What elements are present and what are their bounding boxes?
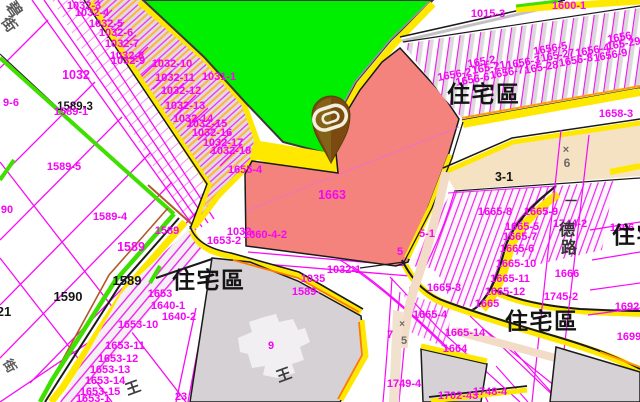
svg-text:5-1: 5-1 (419, 228, 435, 240)
svg-text:1015-3: 1015-3 (471, 8, 505, 20)
svg-text:9-6: 9-6 (3, 97, 19, 109)
svg-text:1665-9: 1665-9 (524, 206, 558, 218)
svg-text:1665-6: 1665-6 (500, 243, 534, 255)
svg-text:1692: 1692 (615, 301, 639, 313)
svg-text:1653: 1653 (148, 288, 172, 300)
svg-text:1665-7: 1665-7 (503, 231, 537, 243)
svg-text:1600-1: 1600-1 (552, 0, 586, 12)
svg-text:1699: 1699 (617, 331, 640, 343)
svg-text:1665: 1665 (475, 298, 499, 310)
svg-text:1658-3: 1658-3 (599, 108, 633, 120)
svg-text:1589-1: 1589-1 (54, 106, 88, 118)
svg-text:1665-8: 1665-8 (478, 206, 512, 218)
svg-text:×: × (563, 144, 569, 156)
svg-text:1663: 1663 (318, 188, 346, 202)
svg-text:1035: 1035 (301, 273, 325, 285)
svg-text:21: 21 (0, 304, 11, 319)
svg-text:1653-2: 1653-2 (207, 235, 241, 247)
svg-text:1032-11: 1032-11 (155, 72, 195, 84)
svg-text:1032: 1032 (62, 68, 90, 82)
svg-text:1032-10: 1032-10 (152, 58, 192, 70)
svg-text:1665-4: 1665-4 (413, 309, 448, 321)
svg-text:1589-5: 1589-5 (47, 161, 81, 173)
svg-text:5: 5 (401, 335, 407, 347)
svg-text:1665-10: 1665-10 (496, 258, 536, 270)
svg-text:1665-11: 1665-11 (490, 273, 530, 285)
svg-text:1589-: 1589- (292, 286, 320, 298)
svg-text:1653-11: 1653-11 (105, 340, 145, 352)
svg-text:1655-4: 1655-4 (228, 164, 263, 176)
svg-text:1640-2: 1640-2 (162, 311, 196, 323)
svg-text:6: 6 (564, 156, 571, 170)
svg-text:住宅: 住宅 (612, 222, 640, 248)
svg-text:住宅區: 住宅區 (447, 81, 521, 107)
svg-text:1745-2: 1745-2 (544, 291, 578, 303)
svg-text:1589-4: 1589-4 (93, 211, 128, 223)
svg-text:1032-7: 1032-7 (105, 38, 139, 50)
svg-text:1589: 1589 (117, 240, 145, 254)
svg-text:7: 7 (387, 329, 393, 341)
svg-text:一: 一 (565, 194, 577, 208)
svg-text:路: 路 (561, 238, 578, 257)
svg-text:1589: 1589 (113, 273, 142, 288)
svg-text:1032-18: 1032-18 (211, 145, 251, 157)
svg-text:5: 5 (397, 246, 403, 258)
svg-text:1589: 1589 (155, 225, 179, 237)
svg-text:×: × (399, 319, 405, 330)
svg-text:1032-9: 1032-9 (111, 55, 145, 67)
svg-text:23: 23 (175, 391, 187, 402)
svg-text:1666: 1666 (555, 268, 579, 280)
svg-text:1032-12: 1032-12 (161, 85, 201, 97)
svg-text:住宅區: 住宅區 (172, 267, 246, 293)
svg-text:1665-14: 1665-14 (445, 327, 486, 339)
svg-text:90: 90 (1, 204, 13, 216)
svg-text:1749-4: 1749-4 (387, 378, 422, 390)
svg-text:9: 9 (268, 340, 274, 352)
svg-text:德: 德 (559, 220, 575, 239)
svg-text:1653-10: 1653-10 (118, 319, 158, 331)
svg-text:1031-1: 1031-1 (202, 71, 236, 83)
svg-text:1032-13: 1032-13 (165, 100, 205, 112)
svg-text:1664: 1664 (443, 343, 468, 355)
svg-text:1653-1: 1653-1 (76, 393, 110, 402)
svg-text:3-1: 3-1 (495, 170, 513, 184)
svg-text:1665-12: 1665-12 (485, 286, 525, 298)
svg-text:1748-4: 1748-4 (473, 386, 508, 398)
svg-text:1032-1: 1032-1 (327, 264, 361, 276)
svg-text:1590: 1590 (54, 289, 83, 304)
svg-text:住宅區: 住宅區 (505, 308, 579, 334)
svg-text:1660-4-2: 1660-4-2 (243, 229, 287, 241)
svg-text:1665-3: 1665-3 (427, 282, 461, 294)
